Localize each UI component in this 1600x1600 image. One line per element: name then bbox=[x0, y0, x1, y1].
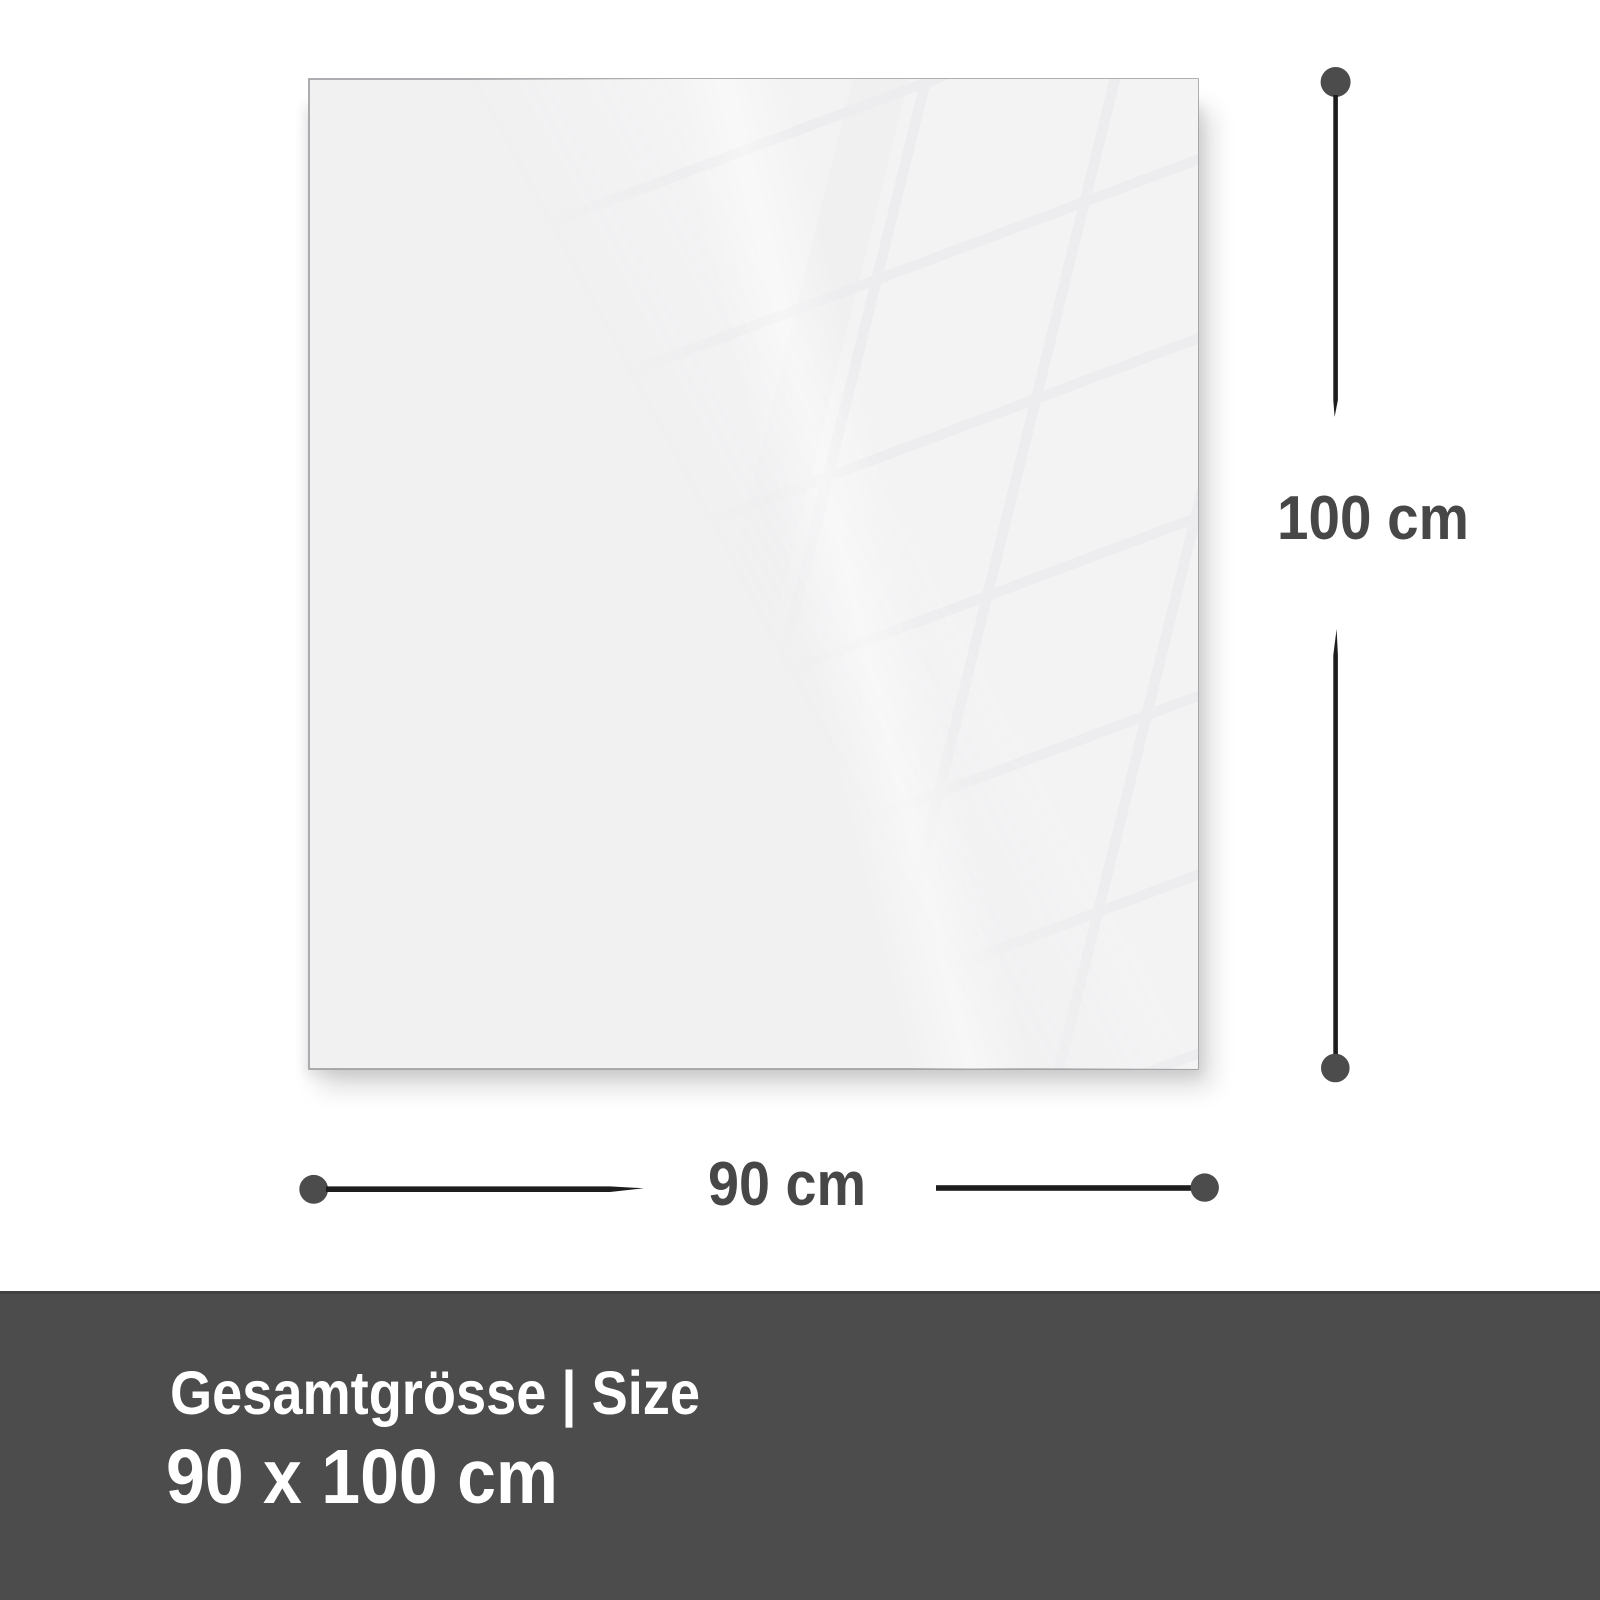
svg-text:90 x 100 cm: 90 x 100 cm bbox=[166, 1434, 558, 1520]
svg-text:100 cm: 100 cm bbox=[1277, 484, 1469, 553]
svg-text:Gesamtgrösse | Size: Gesamtgrösse | Size bbox=[170, 1359, 700, 1429]
svg-text:90 cm: 90 cm bbox=[708, 1150, 866, 1219]
